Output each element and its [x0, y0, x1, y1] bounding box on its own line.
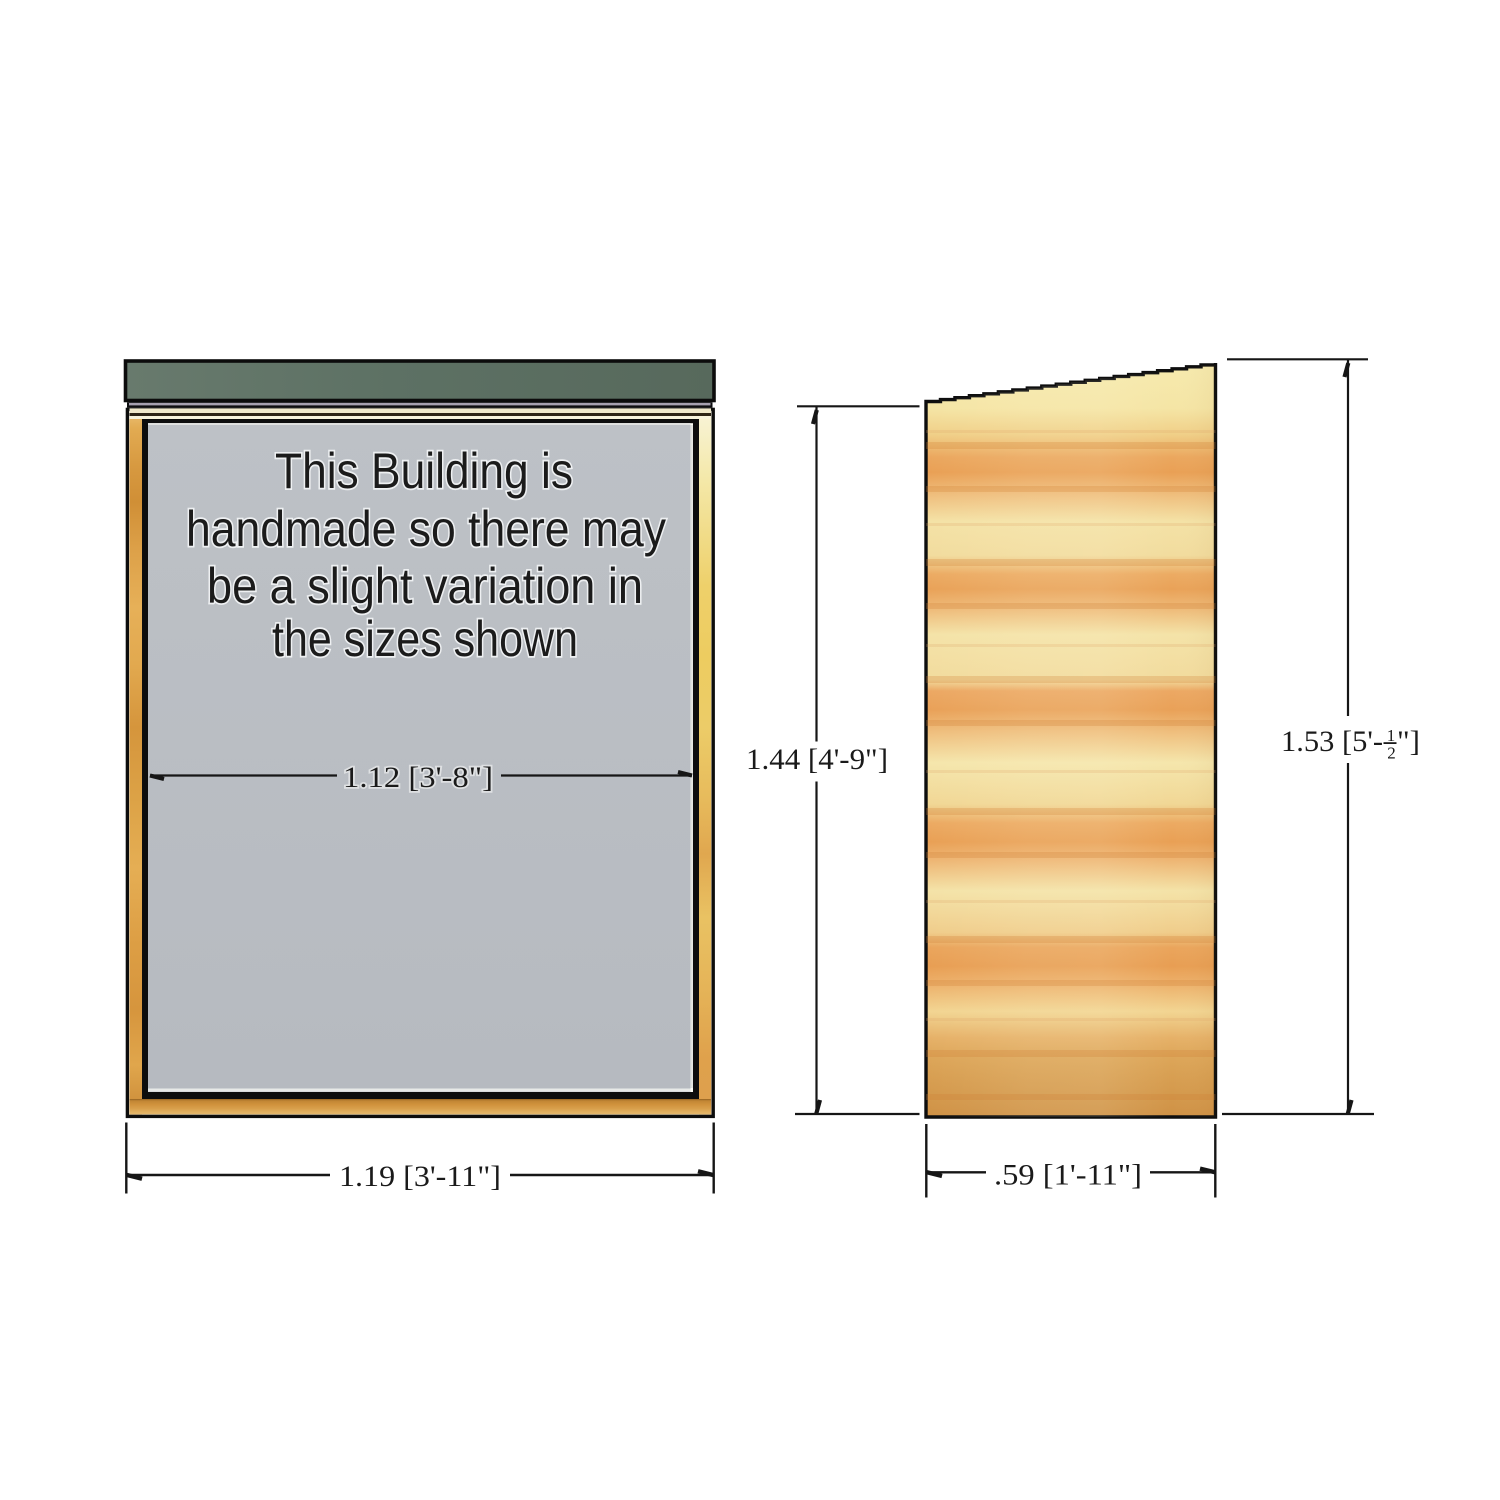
svg-text:2: 2: [1387, 744, 1396, 763]
svg-text:This Building is: This Building is: [275, 442, 573, 499]
svg-text:1: 1: [1387, 726, 1396, 745]
svg-text:1.44 [4'-9"]: 1.44 [4'-9"]: [746, 743, 888, 776]
svg-text:handmade so there may: handmade so there may: [186, 500, 667, 557]
svg-text:1.12 [3'-8"]: 1.12 [3'-8"]: [343, 761, 493, 794]
svg-text:"]: "]: [1397, 725, 1420, 758]
svg-text:.59 [1'-11"]: .59 [1'-11"]: [994, 1159, 1142, 1192]
svg-text:be a slight variation in: be a slight variation in: [207, 557, 643, 614]
svg-text:1.53 [5'-: 1.53 [5'-: [1281, 725, 1383, 758]
svg-text:the sizes shown: the sizes shown: [272, 610, 578, 667]
svg-text:1.19 [3'-11"]: 1.19 [3'-11"]: [339, 1160, 501, 1193]
